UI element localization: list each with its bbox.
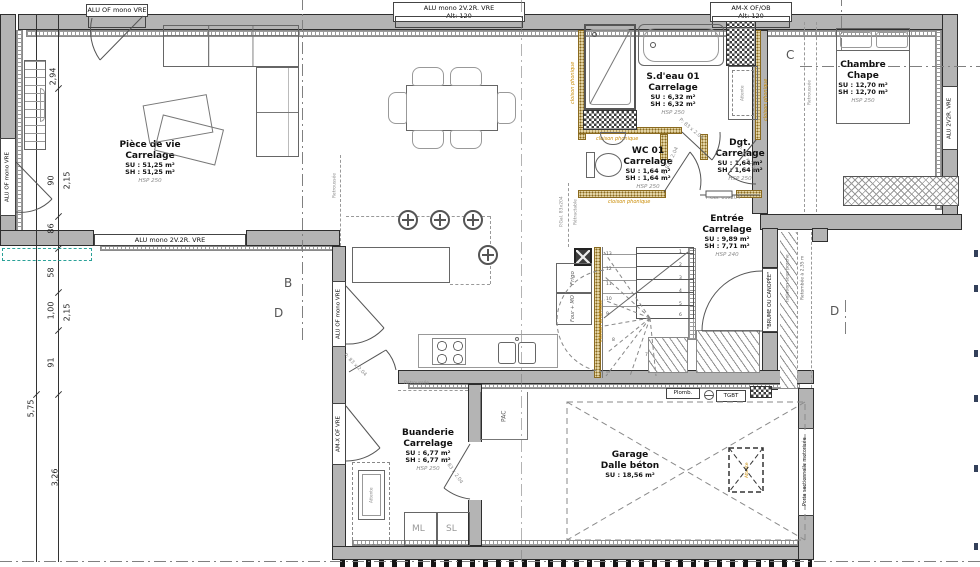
terrace-edge <box>2 248 92 261</box>
porch-retombee-label: Retombée à 2,35 m <box>799 238 807 318</box>
dryer-label: SL <box>446 524 457 534</box>
window-laundry-west: AM-X OF VRE <box>332 403 346 465</box>
window-label-text: ALU mono 2V.2R. VRE <box>135 236 205 244</box>
porch-isolation-label: Isolation sous porche <box>784 238 792 318</box>
window-label-text: AM-X OF VRE <box>333 404 345 464</box>
window-top-left <box>88 16 146 28</box>
dim-86: 86 <box>47 223 56 233</box>
retroussee-label-laundry: Retroussée <box>404 381 429 386</box>
edge-dim-mark <box>974 395 978 402</box>
window-label-text: AM-X OF/OB <box>731 4 770 12</box>
cloison-label-bath-east: cloison phonique <box>762 72 770 128</box>
oven-label: Four + MO <box>566 294 580 324</box>
bed-blanket-line <box>836 50 910 51</box>
retroussee-line-laundry <box>398 390 468 391</box>
garage-door-gap: Porte sectionnelle motorisée <box>798 428 814 516</box>
dining-table <box>406 85 498 131</box>
stair-number: 13 <box>606 252 612 257</box>
wall-left-insulation <box>16 30 23 240</box>
window-top-mid <box>395 16 523 28</box>
dim-90: 90 <box>47 175 56 185</box>
window-left-wall: ALU OF mono VRE <box>0 138 16 216</box>
room-hsp: HSP 250 <box>90 178 210 185</box>
dining-chair <box>450 67 482 86</box>
door-entry <box>702 271 762 331</box>
section-letter-b: B <box>284 276 292 290</box>
room-name: Garage <box>578 450 682 461</box>
dim-5-75: 5,75 <box>26 400 35 418</box>
tv-screen <box>40 88 45 122</box>
door-label-kitchen: P: 83 x 2.04 <box>342 352 367 377</box>
sectional-door-label: Porte sectionnelle motorisée <box>799 429 813 515</box>
dining-chair <box>497 92 516 124</box>
retroussee-line-bedroom-1 <box>804 22 805 212</box>
understair-hatch-right <box>696 330 760 373</box>
door-gap-laundry-garage <box>468 442 482 500</box>
dining-chair <box>412 130 444 149</box>
room-sh: SH : 1,64 m² <box>616 175 680 183</box>
wardrobe <box>843 176 959 206</box>
plomb-box: Plomb. <box>666 388 700 399</box>
room-entry: Entrée Carrelage SU : 9,89 m² SH : 7,71 … <box>690 214 764 259</box>
kitchen-sink-left <box>498 342 516 364</box>
dim-1-00: 1,00 <box>46 302 55 320</box>
window-label-text: ALU OF mono VRE <box>1 139 15 215</box>
retroussee-label-kitchen: Retroussée <box>331 160 339 210</box>
sofa-vertical <box>256 67 299 157</box>
room-garage: Garage Dalle béton SU : 18,56 m² <box>578 450 682 479</box>
shower-tray <box>589 29 631 105</box>
window-bedroom-east: ALU 2V2R. VRE <box>942 86 958 150</box>
window-label-text: ALU OF mono VRE <box>333 282 345 346</box>
room-sh: SH : 7,71 m² <box>690 243 764 251</box>
window-top-right <box>712 16 790 28</box>
stair-number: 5 <box>679 302 682 307</box>
window-label-text: ALU 2V2R. VRE <box>943 87 957 149</box>
understair-hatch-left <box>648 337 688 373</box>
stair-number: 2 <box>679 263 682 268</box>
dining-chair <box>412 67 444 86</box>
bathtub-tap <box>650 42 656 48</box>
washing-machine-label: ML <box>412 524 425 534</box>
retroussee-label-bedroom: Retroussée <box>806 66 814 118</box>
plomb-label: Plomb. <box>674 390 693 397</box>
porch-dashed-line-1 <box>797 232 798 388</box>
dining-chair <box>388 92 407 124</box>
door-entry-gap: "BRUME OU CANOPÉE" <box>762 268 778 332</box>
room-floor: Carrelage <box>690 225 764 236</box>
dim-2-15-a: 2,15 <box>62 172 71 190</box>
section-line-d-right <box>845 296 846 334</box>
wall-porch-corner <box>812 228 828 242</box>
room-hsp: HSP 250 <box>628 110 718 117</box>
stair-number: 10 <box>606 297 612 302</box>
wall-bottom <box>332 546 814 560</box>
bar-stool <box>478 245 498 265</box>
room-sh: SH : 6,32 m² <box>628 101 718 109</box>
stair-number: 8 <box>612 338 615 343</box>
section-letter-d-left: D <box>274 306 283 320</box>
bar-stool <box>430 210 450 230</box>
room-floor: Carrelage <box>90 151 210 162</box>
tgbt-box: TGBT <box>716 390 746 402</box>
floor-drain <box>704 390 714 400</box>
room-hsp: HSP 250 <box>616 184 680 191</box>
room-name: Pièce de vie <box>90 140 210 151</box>
window-kitchen-west: ALU OF mono VRE <box>332 281 346 347</box>
dim-2-94: 2,94 <box>48 68 57 86</box>
room-floor: Dalle béton <box>578 461 682 472</box>
window-living-south: ALU mono 2V.2R. VRE <box>94 234 246 246</box>
stair-number: 9 <box>606 312 609 317</box>
edge-dim-mark <box>974 350 978 357</box>
sink-tap <box>515 337 519 341</box>
kitchen-counter-dashed-link <box>450 284 490 285</box>
wc-basin <box>600 132 626 145</box>
pgal-label-vert: P.Gal. 83x204 <box>558 186 566 238</box>
room-name: Buanderie <box>388 428 468 439</box>
cooktop <box>432 338 466 365</box>
edge-dim-mark <box>974 285 978 292</box>
retroussee-line-kitchen <box>340 155 341 246</box>
window-label-text: ALU OF mono VRE <box>87 6 146 14</box>
pillow <box>876 32 908 48</box>
wall-garage-north-insulation <box>408 384 800 389</box>
room-floor: Carrelage <box>388 439 468 450</box>
room-sh: SH : 6,77 m² <box>388 457 468 465</box>
door-kitchen-west <box>346 286 384 344</box>
shaft-garage-top <box>750 386 772 398</box>
retractable-label: Rétractable <box>572 186 580 238</box>
door-label-pgal-entry: P.Gal. 83x204 <box>706 195 740 201</box>
room-sh: SH : 1,64 m² <box>708 167 772 175</box>
tgbt-label: TGBT <box>724 393 739 400</box>
section-line-b <box>302 0 303 340</box>
stair-number: 6 <box>679 313 682 318</box>
cloison-label-wc-south: cloison phonique <box>608 199 650 205</box>
wc-bowl <box>595 153 622 177</box>
room-hsp: HSP 240 <box>690 252 764 259</box>
porch-dashed-line-2 <box>811 232 812 388</box>
edge-dim-mark <box>974 465 978 472</box>
dim-91: 91 <box>47 357 56 367</box>
retroussee-line-bedroom-2 <box>816 22 817 212</box>
coffee-table-1 <box>143 95 213 144</box>
sofa-horizontal <box>163 25 299 67</box>
kitchen-sink-right <box>518 342 536 364</box>
door-laundry-west <box>346 406 380 461</box>
fridge-label: Frigo <box>566 264 580 292</box>
front-door-color-label: "BRUME OU CANOPÉE" <box>763 269 777 331</box>
pillow <box>840 32 872 48</box>
stair-flight-solid <box>636 247 694 319</box>
bar-stool <box>463 210 483 230</box>
wall-south-bedroom <box>760 214 962 230</box>
section-line-bottom <box>0 561 980 562</box>
dim-2-15-b: 2,15 <box>62 304 71 322</box>
room-laundry: Buanderie Carrelage SU : 6,77 m² SH : 6,… <box>388 428 468 473</box>
pac-label: PAC <box>498 400 510 432</box>
room-bath: S.d'eau 01 Carrelage SU : 6,32 m² SH : 6… <box>628 72 718 117</box>
stair-number: 11 <box>606 282 612 287</box>
room-floor: Carrelage <box>628 83 718 94</box>
wc-tank <box>586 152 595 178</box>
room-sh: SH : 51,25 m² <box>90 169 210 177</box>
floor-plan: ALU OF mono VRE ALU mono 2V.2R. VRE Alt:… <box>0 0 980 567</box>
window-label-text: ALU mono 2V.2R. VRE <box>424 4 494 12</box>
stair-number: 3 <box>679 276 682 281</box>
edge-dim-mark <box>974 250 978 257</box>
stair-number: 12 <box>606 267 612 272</box>
dim-58: 58 <box>47 267 56 277</box>
entry-kitchen-dashed <box>568 183 569 247</box>
dining-chair <box>450 130 482 149</box>
shower-drain <box>592 32 597 37</box>
dim-3-26: 3,26 <box>50 469 59 487</box>
partition-wc-south <box>578 190 666 198</box>
section-line-mid <box>521 0 522 562</box>
bar-stool <box>398 210 418 230</box>
wall-southwest-b <box>246 230 340 246</box>
kitchen-island <box>352 247 450 283</box>
section-letter-d-right: D <box>830 304 839 318</box>
cloison-label-bath-west: cloison phonique <box>569 55 577 111</box>
car-reservation-label: Attente <box>742 452 751 488</box>
room-name: S.d'eau 01 <box>628 72 718 83</box>
room-su: SU : 18,56 m² <box>578 472 682 480</box>
room-name: Entrée <box>690 214 764 225</box>
laundry-attente-label: Attente <box>367 480 375 510</box>
section-letter-c: C <box>786 48 794 62</box>
stair-number: 1 <box>679 250 682 255</box>
wall-entry-east-upper <box>762 228 778 268</box>
stair-number: 4 <box>679 289 682 294</box>
edge-dim-mark <box>974 543 978 550</box>
room-hsp: HSP 250 <box>708 176 772 183</box>
room-living: Pièce de vie Carrelage SU : 51,25 m² SH … <box>90 140 210 185</box>
vanity-attente-label: Attente <box>738 78 746 108</box>
